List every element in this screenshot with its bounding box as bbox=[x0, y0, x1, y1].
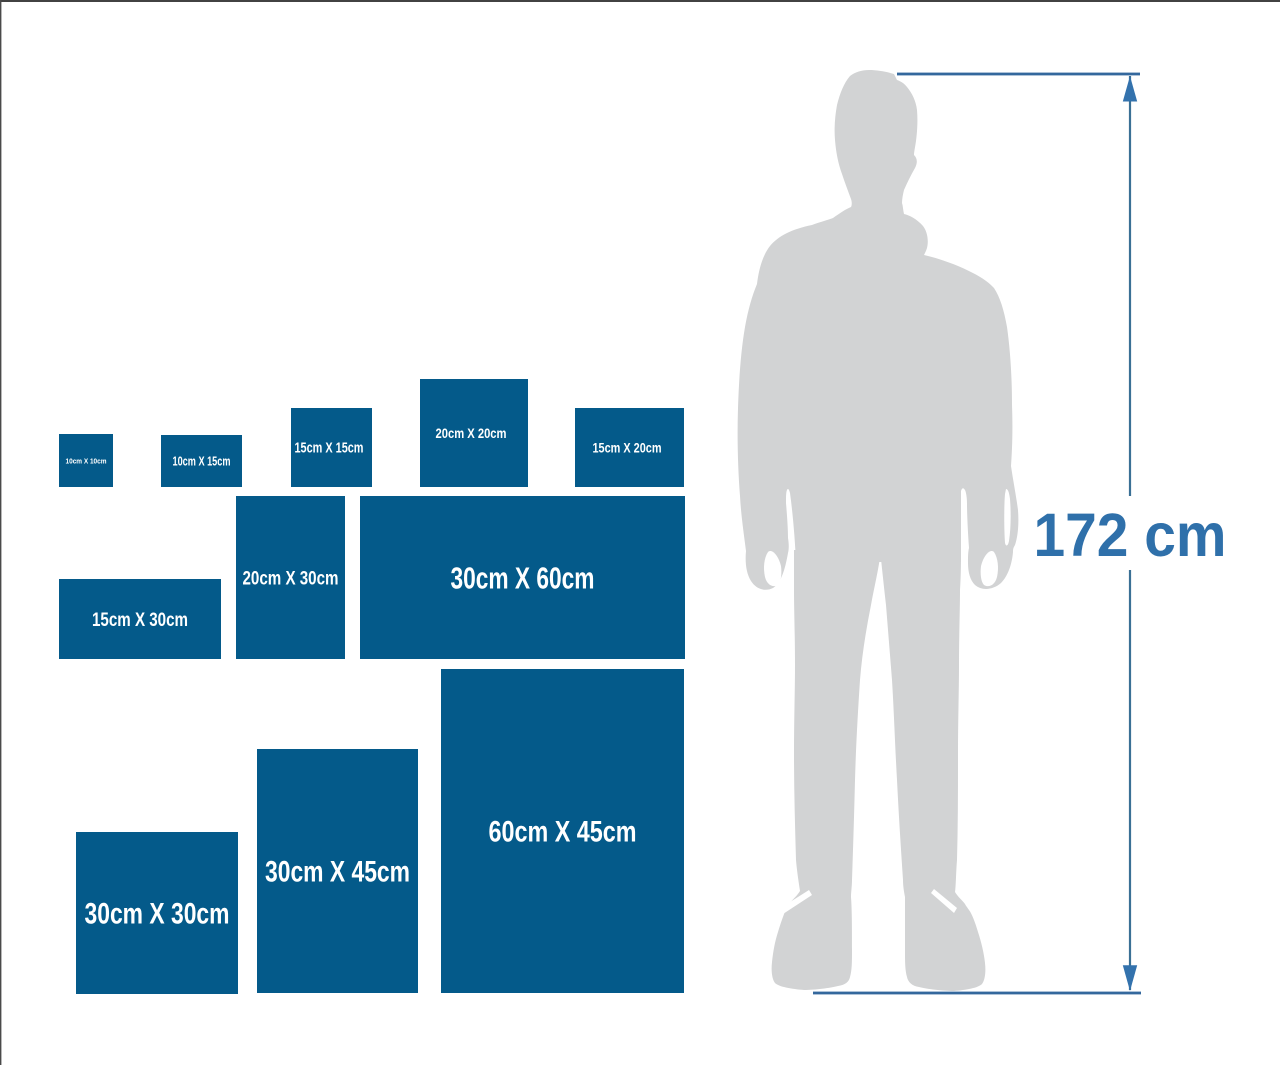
svg-text:15cm X 15cm: 15cm X 15cm bbox=[295, 441, 364, 457]
svg-text:30cm X 60cm: 30cm X 60cm bbox=[451, 561, 595, 595]
svg-text:30cm X 45cm: 30cm X 45cm bbox=[265, 856, 410, 889]
svg-text:60cm X 45cm: 60cm X 45cm bbox=[489, 816, 637, 849]
svg-text:10cm X 15cm: 10cm X 15cm bbox=[173, 454, 231, 469]
svg-text:15cm X 20cm: 15cm X 20cm bbox=[593, 441, 662, 457]
svg-text:15cm X 30cm: 15cm X 30cm bbox=[92, 609, 188, 631]
svg-text:20cm X 30cm: 20cm X 30cm bbox=[243, 568, 339, 590]
svg-text:172 cm: 172 cm bbox=[1034, 501, 1227, 569]
svg-text:30cm X 30cm: 30cm X 30cm bbox=[85, 898, 230, 931]
svg-text:10cm X 10cm: 10cm X 10cm bbox=[66, 457, 107, 466]
svg-text:20cm X 20cm: 20cm X 20cm bbox=[436, 426, 507, 442]
